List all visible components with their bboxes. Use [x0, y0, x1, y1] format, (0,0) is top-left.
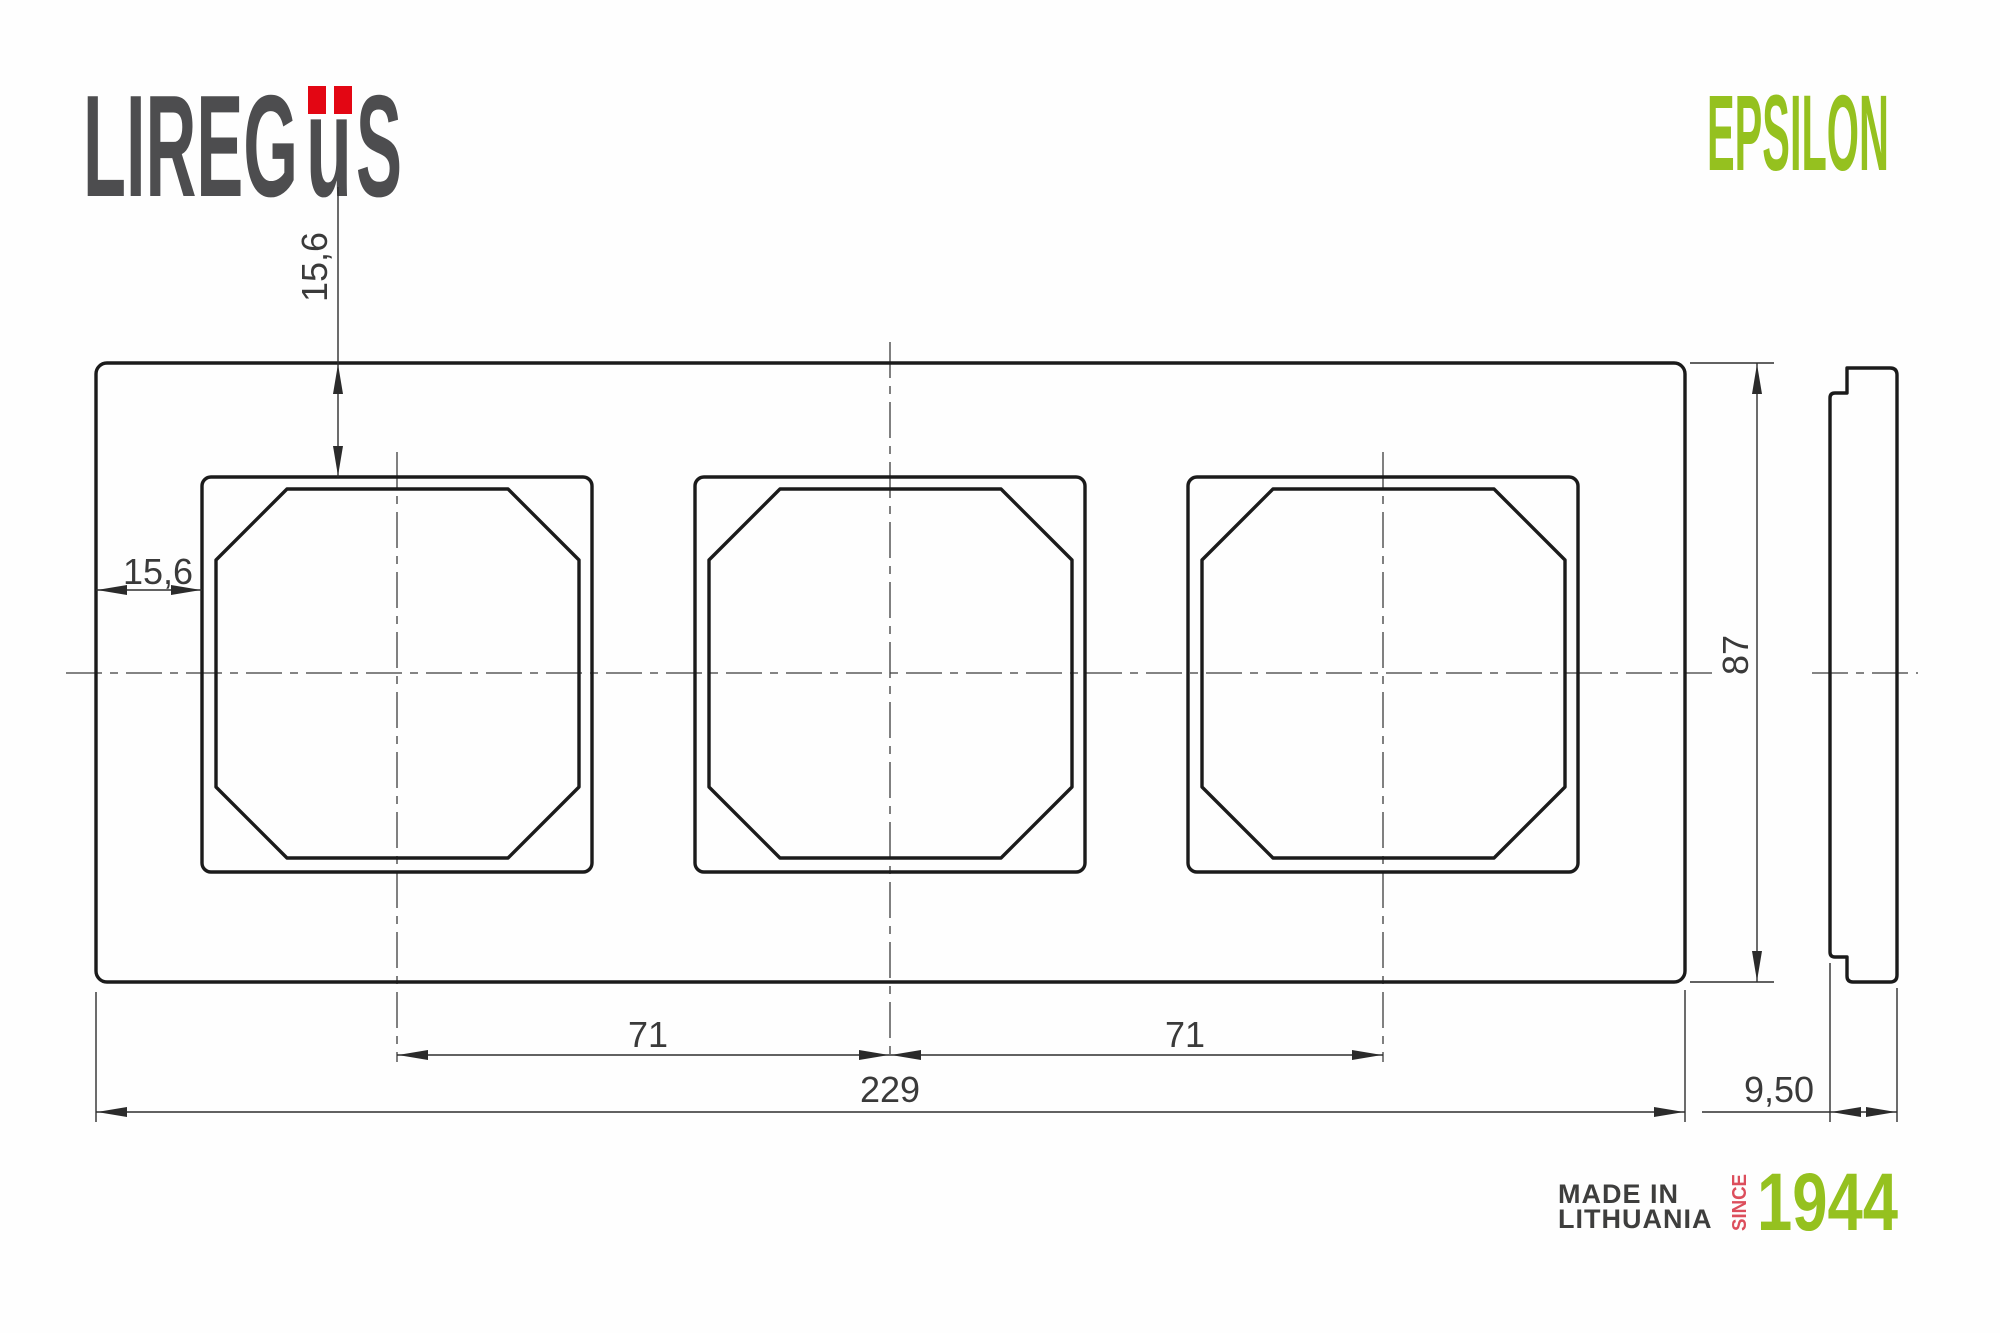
dim-label-total-width: 229 [860, 1069, 920, 1110]
dim-label-total-height: 87 [1715, 635, 1756, 675]
since-label: SINCE [1729, 1174, 1751, 1231]
made-in-line2: LITHUANIA [1558, 1204, 1712, 1234]
dim-label-pitch-right: 71 [1165, 1014, 1205, 1055]
dim-label-depth: 9,50 [1744, 1069, 1814, 1110]
arrow-pitchR-right [1352, 1050, 1382, 1060]
since-year: 1944 [1757, 1157, 1898, 1248]
logo-text-lireg: LIREG [83, 65, 298, 227]
arrow-top-offset-down [333, 446, 343, 476]
arrow-depth-right [1866, 1107, 1896, 1117]
arrow-top-offset-up [333, 364, 343, 394]
drawing-sheet: LIREG u S EPSILON [0, 0, 2000, 1333]
technical-drawing-canvas: LIREG u S EPSILON [0, 0, 2000, 1333]
arrow-height-down [1752, 951, 1762, 981]
liregus-logo: LIREG u S [83, 65, 402, 227]
arrow-pitchR-left [891, 1050, 921, 1060]
arrow-width-left [97, 1107, 127, 1117]
centerlines [66, 342, 1918, 1062]
arrow-width-right [1654, 1107, 1684, 1117]
arrow-pitchL-left [398, 1050, 428, 1060]
series-name-epsilon: EPSILON [1707, 72, 1889, 193]
dim-label-pitch-left: 71 [628, 1014, 668, 1055]
arrow-pitchL-right [859, 1050, 889, 1060]
umlaut-dot-right [334, 86, 352, 114]
footer-block: MADE IN LITHUANIA SINCE 1944 [1558, 1157, 1898, 1248]
dim-label-top-offset: 15,6 [294, 232, 335, 302]
arrow-depth-left [1831, 1107, 1861, 1117]
logo-text-s: S [356, 65, 402, 227]
umlaut-dot-left [308, 86, 326, 114]
side-view-profile [1830, 368, 1897, 982]
arrow-height-up [1752, 364, 1762, 394]
dim-label-left-offset: 15,6 [123, 551, 193, 592]
